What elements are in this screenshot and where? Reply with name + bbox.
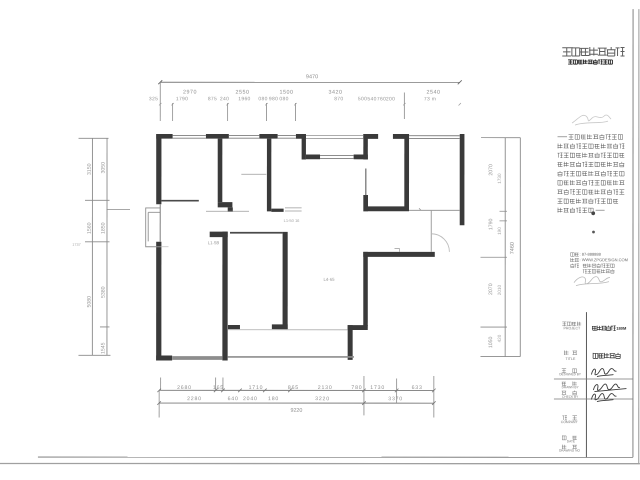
svg-text:200: 200 [386, 96, 395, 102]
svg-text:2010: 2010 [497, 285, 502, 296]
svg-text:325: 325 [149, 96, 158, 102]
svg-text:L1-5B: L1-5B [208, 240, 220, 245]
svg-text:COMPANY: COMPANY [561, 420, 579, 424]
svg-text:1730: 1730 [497, 173, 502, 184]
svg-text:5080: 5080 [87, 296, 93, 308]
svg-text:3220: 3220 [315, 396, 330, 402]
svg-text:3370: 3370 [388, 396, 403, 402]
svg-text:870: 870 [334, 96, 343, 102]
svg-text:1545: 1545 [101, 342, 107, 354]
svg-text:190: 190 [497, 227, 502, 235]
svg-text:420: 420 [497, 334, 502, 342]
svg-text:2280: 2280 [187, 396, 202, 402]
svg-text:780: 780 [351, 385, 362, 391]
svg-text:1710: 1710 [249, 385, 264, 391]
svg-text:1500: 1500 [280, 90, 294, 96]
svg-text:DESIGNED BY: DESIGNED BY [559, 372, 582, 376]
svg-text:CHECK BY: CHECK BY [562, 395, 579, 399]
svg-text:240: 240 [220, 96, 229, 102]
svg-text:1730: 1730 [370, 385, 385, 391]
svg-text:760: 760 [377, 96, 386, 102]
svg-text:633: 633 [412, 385, 423, 391]
svg-text:1790: 1790 [176, 96, 188, 102]
svg-text:2130: 2130 [318, 385, 333, 391]
svg-text:DATE: DATE [567, 439, 575, 443]
svg-text:865: 865 [288, 385, 299, 391]
svg-text:2680: 2680 [177, 385, 192, 391]
svg-text:080: 080 [279, 96, 288, 102]
svg-text:180: 180 [268, 396, 279, 402]
svg-text:2970: 2970 [183, 90, 197, 96]
svg-text:9220: 9220 [290, 408, 302, 414]
svg-text:L1-50 16: L1-50 16 [284, 218, 301, 223]
svg-text:73 m: 73 m [424, 96, 436, 102]
svg-text:875: 875 [208, 96, 217, 102]
svg-text:1850: 1850 [101, 222, 107, 234]
svg-text:080: 080 [258, 96, 267, 102]
svg-text:DRAWN BY: DRAWN BY [562, 385, 580, 389]
svg-text:PROJECT: PROJECT [563, 326, 581, 330]
svg-text:2070: 2070 [488, 164, 494, 176]
svg-text:640: 640 [228, 396, 239, 402]
svg-text:2070: 2070 [488, 283, 494, 295]
svg-text:3420: 3420 [329, 90, 343, 96]
svg-text:3050: 3050 [101, 162, 107, 174]
svg-text:: WWW.ZPGDESIGN.COM: : WWW.ZPGDESIGN.COM [579, 257, 627, 262]
svg-text:1560: 1560 [87, 222, 93, 234]
svg-text:1960: 1960 [238, 96, 250, 102]
svg-text:5380: 5380 [101, 286, 107, 298]
svg-text:180M: 180M [616, 326, 627, 331]
svg-text:L4-65: L4-65 [323, 277, 335, 282]
svg-text:500: 500 [358, 96, 367, 102]
svg-text:2550: 2550 [236, 90, 250, 96]
svg-text:DRAWING NO: DRAWING NO [559, 449, 580, 453]
svg-text:540: 540 [367, 96, 376, 102]
svg-text:1790: 1790 [488, 218, 494, 230]
svg-text:165: 165 [213, 385, 224, 391]
svg-text:3150: 3150 [87, 163, 93, 175]
svg-text:980: 980 [269, 96, 278, 102]
svg-text:1050: 1050 [488, 336, 494, 348]
svg-text:: 87-888888: : 87-888888 [579, 252, 601, 257]
svg-text:TITLE: TITLE [566, 357, 576, 361]
svg-text:2040: 2040 [243, 396, 258, 402]
svg-text:7460: 7460 [510, 242, 516, 254]
svg-text:9470: 9470 [306, 74, 318, 80]
svg-text:1737: 1737 [72, 243, 80, 247]
svg-text:2540: 2540 [427, 90, 441, 96]
